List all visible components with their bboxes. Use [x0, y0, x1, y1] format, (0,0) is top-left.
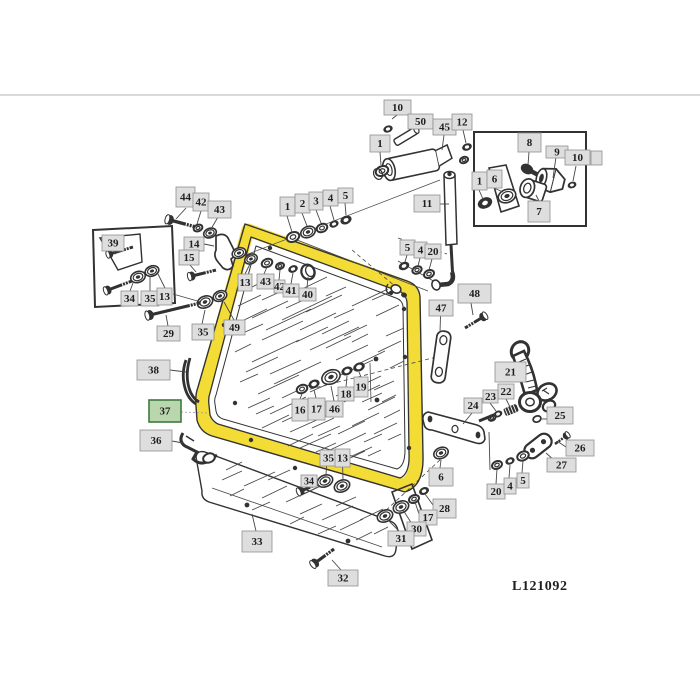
svg-text:1: 1: [377, 138, 383, 150]
svg-text:40: 40: [302, 289, 314, 301]
svg-text:45: 45: [439, 122, 451, 134]
svg-text:3: 3: [313, 196, 319, 208]
svg-text:31: 31: [396, 533, 407, 545]
svg-text:48: 48: [469, 288, 481, 300]
svg-text:43: 43: [214, 204, 226, 216]
svg-text:4: 4: [328, 193, 334, 205]
svg-text:25: 25: [555, 410, 567, 422]
svg-text:35: 35: [323, 453, 335, 465]
svg-text:11: 11: [422, 198, 432, 210]
svg-text:35: 35: [145, 293, 157, 305]
svg-text:34: 34: [124, 293, 136, 305]
svg-text:20: 20: [491, 486, 503, 498]
svg-text:6: 6: [492, 174, 498, 186]
svg-text:32: 32: [338, 573, 350, 585]
svg-text:13: 13: [159, 291, 171, 303]
svg-text:29: 29: [163, 328, 175, 340]
svg-text:5: 5: [520, 475, 526, 487]
svg-text:37: 37: [160, 406, 172, 418]
svg-text:33: 33: [252, 536, 264, 548]
svg-text:39: 39: [108, 238, 120, 250]
svg-text:6: 6: [438, 472, 444, 484]
svg-text:27: 27: [556, 460, 568, 472]
svg-text:5: 5: [343, 190, 349, 202]
svg-text:13: 13: [240, 277, 252, 289]
svg-text:17: 17: [311, 404, 323, 416]
svg-text:23: 23: [485, 391, 497, 403]
svg-text:14: 14: [189, 239, 201, 251]
svg-text:44: 44: [180, 192, 192, 204]
svg-text:49: 49: [229, 322, 241, 334]
svg-text:13: 13: [337, 453, 349, 465]
svg-text:2: 2: [300, 198, 306, 210]
svg-text:22: 22: [501, 386, 513, 398]
svg-text:47: 47: [436, 303, 448, 315]
svg-text:21: 21: [505, 367, 516, 379]
svg-text:42: 42: [196, 197, 208, 209]
svg-text:1: 1: [477, 176, 483, 188]
svg-text:26: 26: [575, 443, 587, 455]
svg-text:9: 9: [554, 147, 560, 159]
svg-text:34: 34: [304, 476, 314, 487]
svg-text:4: 4: [507, 481, 513, 493]
svg-text:4: 4: [418, 245, 424, 257]
svg-text:24: 24: [468, 400, 480, 412]
svg-text:19: 19: [356, 382, 368, 394]
svg-text:41: 41: [286, 285, 297, 297]
svg-text:20: 20: [428, 246, 440, 258]
svg-text:12: 12: [457, 117, 469, 129]
svg-text:15: 15: [184, 252, 196, 264]
svg-text:18: 18: [341, 389, 353, 401]
svg-text:10: 10: [392, 102, 404, 114]
svg-text:38: 38: [148, 365, 160, 377]
svg-text:1: 1: [285, 201, 291, 213]
svg-text:35: 35: [198, 327, 210, 339]
svg-text:8: 8: [527, 137, 533, 149]
svg-text:7: 7: [536, 206, 542, 218]
svg-text:L121092: L121092: [512, 579, 568, 594]
svg-text:5: 5: [405, 242, 411, 254]
svg-text:36: 36: [151, 435, 163, 447]
svg-text:43: 43: [260, 276, 272, 288]
svg-text:46: 46: [329, 404, 341, 416]
svg-text:28: 28: [439, 503, 451, 515]
svg-text:10: 10: [572, 152, 584, 164]
svg-text:50: 50: [415, 116, 427, 128]
svg-text:16: 16: [295, 405, 307, 417]
